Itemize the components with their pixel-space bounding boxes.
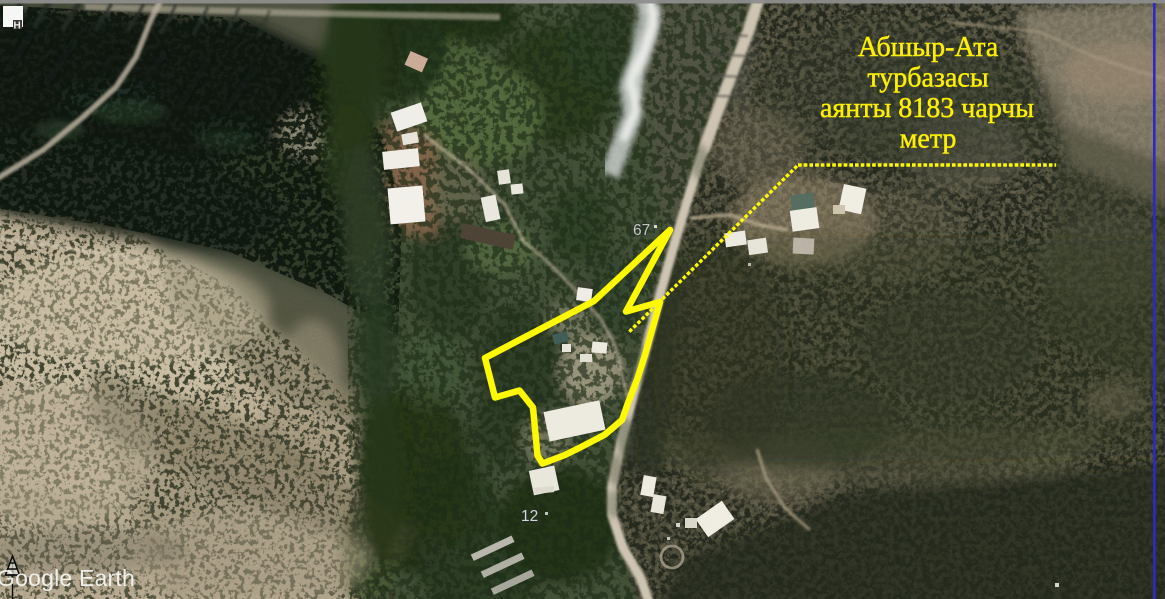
svg-text:12: 12: [521, 508, 538, 525]
svg-text:метр: метр: [900, 124, 957, 155]
svg-text:Google Earth: Google Earth: [0, 565, 135, 591]
svg-text:67: 67: [633, 222, 650, 239]
svg-text:турбазасы: турбазасы: [867, 63, 988, 94]
svg-text:Абшыр-Ата: Абшыр-Ата: [858, 32, 999, 63]
svg-text:H: H: [14, 21, 21, 32]
svg-text:аянты 8183 чарчы: аянты 8183 чарчы: [820, 93, 1034, 124]
